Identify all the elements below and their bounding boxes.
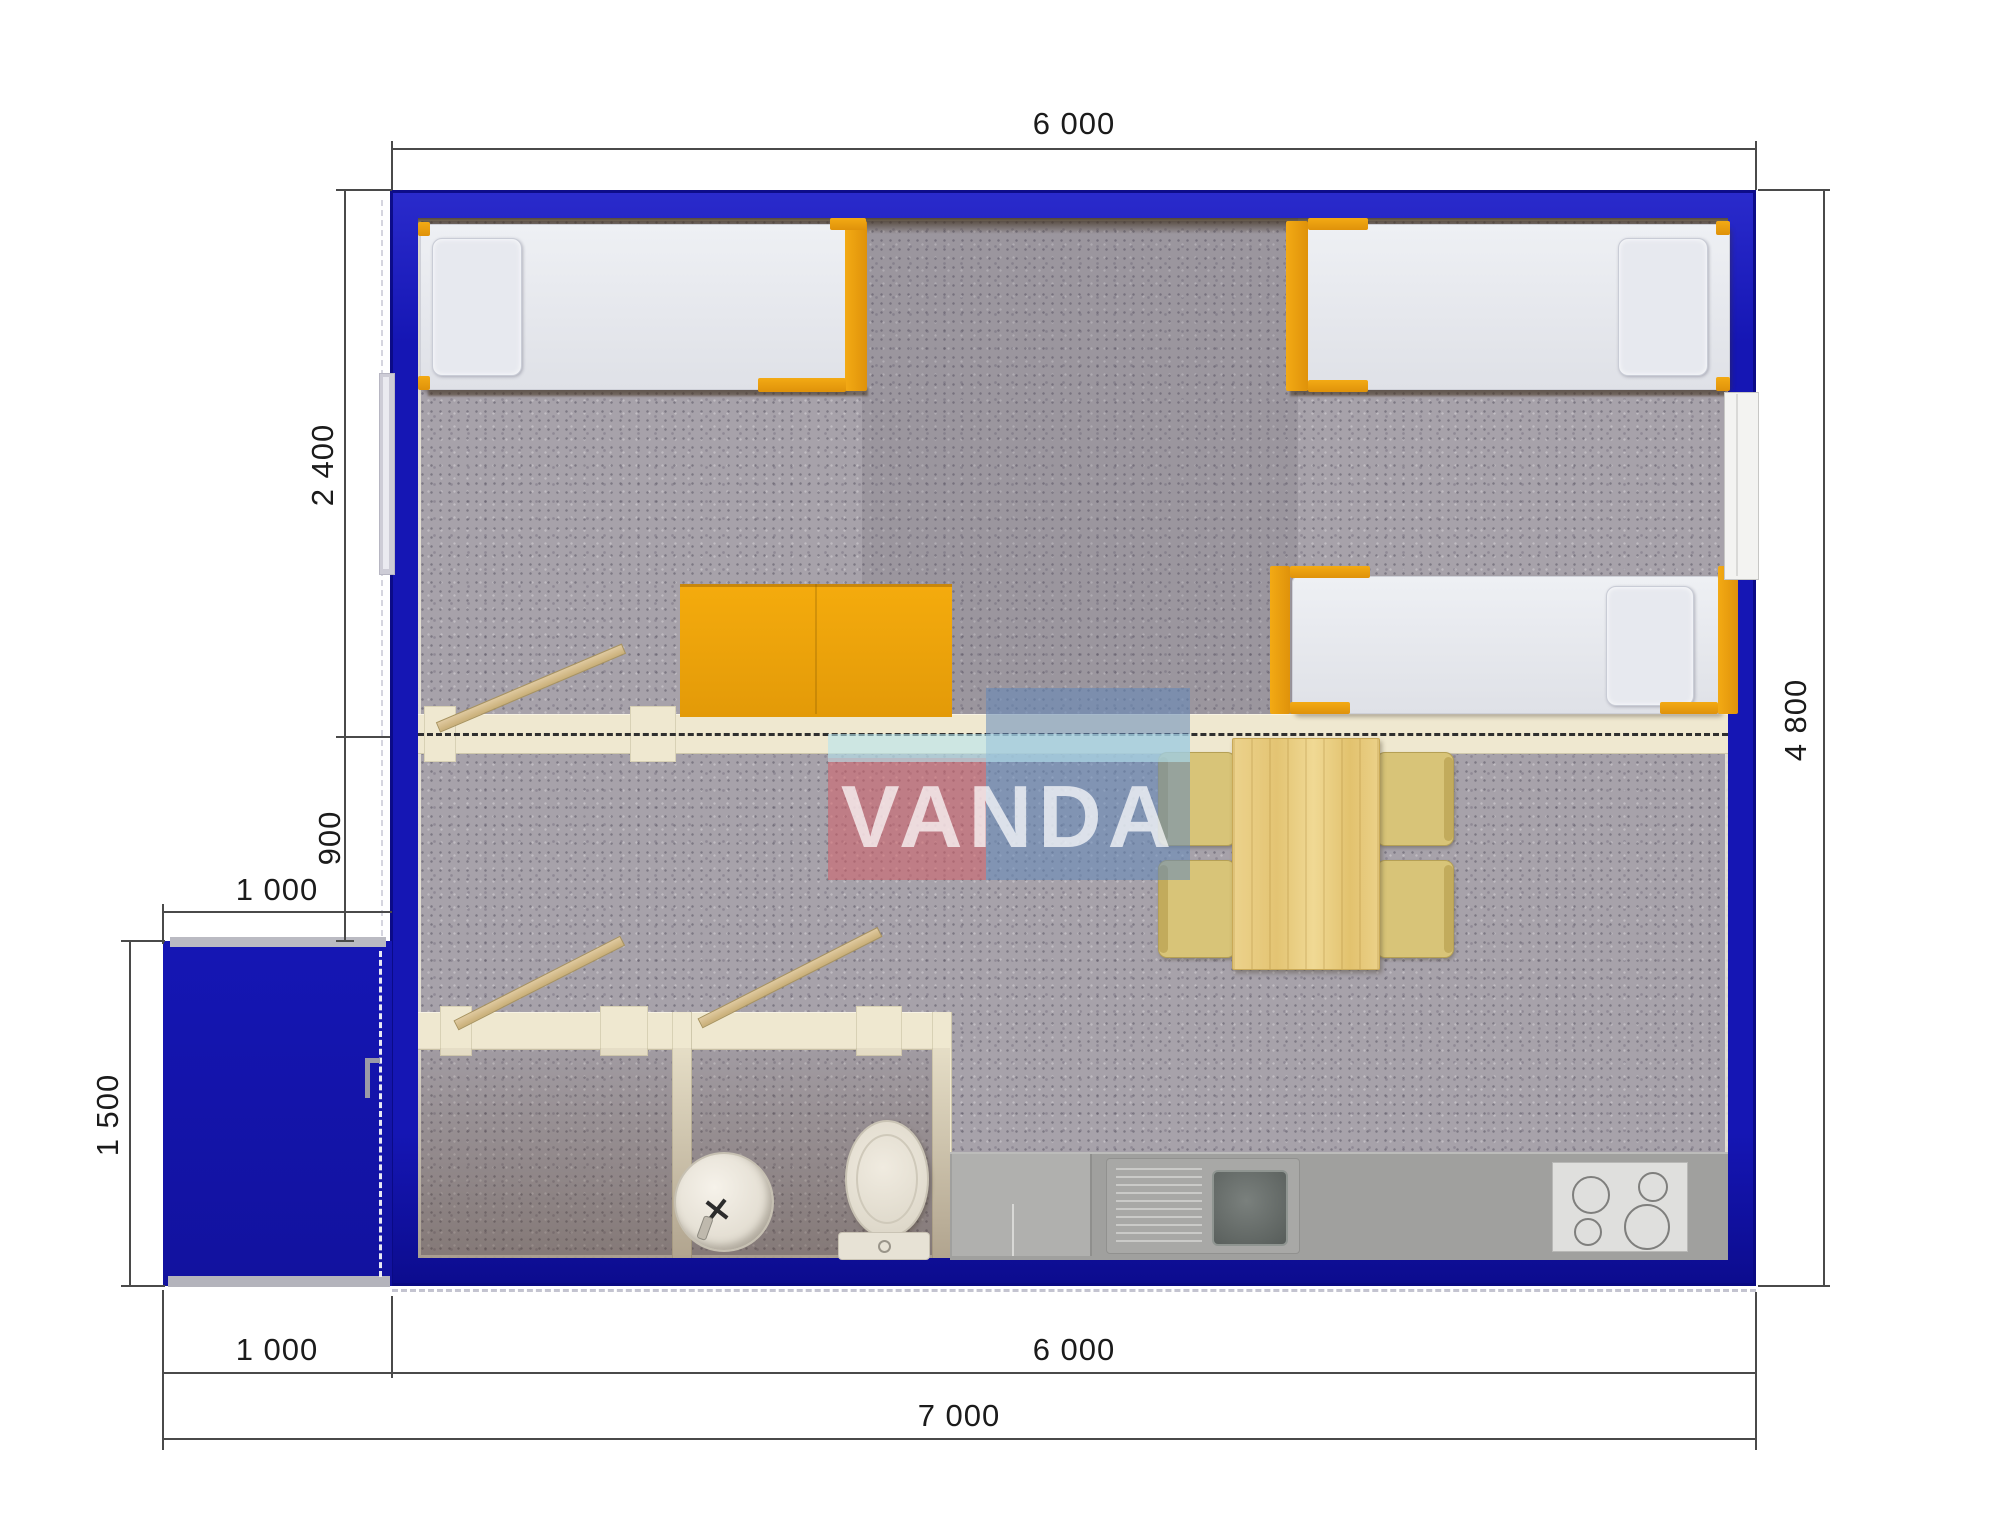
bed-frame-rail: [758, 378, 846, 392]
dim-line-bottom-2: [163, 1438, 1756, 1440]
dim-label-bottom-main: 6 000: [1000, 1332, 1148, 1368]
bed-top-left-pillow: [432, 238, 522, 376]
dim-label-bottom-porch: 1 000: [202, 1332, 352, 1368]
bed-frame-tab: [1716, 221, 1730, 235]
sink-drainboard: [1116, 1168, 1202, 1244]
stove-burner: [1638, 1172, 1668, 1202]
toilet-seat-rim: [856, 1134, 918, 1224]
bed-frame-rail: [1308, 218, 1368, 230]
dim-line-bottom-1: [163, 1372, 1756, 1374]
window-right-wall: [1724, 392, 1759, 580]
kitchen-sink-basin: [1212, 1170, 1288, 1246]
door-handle-icon: [365, 1058, 380, 1063]
stove-burner: [1574, 1218, 1602, 1246]
entrance-door-dashed-line: [379, 951, 382, 1277]
bed-frame-rail: [830, 218, 866, 230]
cabinet-split: [1012, 1204, 1014, 1256]
dim-label-porch-depth: 1 500: [90, 1035, 126, 1195]
bed-mid-right-pillow: [1606, 586, 1694, 706]
stove-burner: [1572, 1176, 1610, 1214]
dining-chair: [1376, 860, 1454, 958]
dim-line-top: [392, 148, 1756, 150]
dim-tick: [336, 940, 354, 942]
stove-top: [1552, 1162, 1688, 1252]
dim-tick: [336, 736, 390, 738]
dining-chair: [1376, 752, 1454, 846]
window-left-glass: [383, 377, 389, 569]
dim-ext: [1758, 1285, 1830, 1287]
brand-watermark: VANDA: [828, 688, 1190, 882]
kitchen-cabinet: [952, 1154, 1092, 1256]
door-handle-icon: [365, 1058, 370, 1098]
stove-burner: [1624, 1204, 1670, 1250]
bed-frame-rail: [1290, 566, 1370, 578]
dim-ext: [1755, 141, 1757, 190]
dining-table: [1232, 738, 1380, 970]
dim-label-porch-width-top: 1 000: [202, 872, 352, 908]
bed-frame-bar: [1718, 566, 1738, 714]
bottom-wall-hidden-edge: [392, 1289, 1756, 1292]
dim-ext: [391, 1296, 393, 1378]
dim-ext: [121, 1285, 165, 1287]
bed-frame-rail: [1660, 702, 1718, 714]
bed-frame-bar: [1286, 221, 1308, 391]
bed-frame-tab: [1716, 377, 1730, 391]
bed-frame-rail: [1290, 702, 1350, 714]
watermark-text: VANDA: [828, 766, 1190, 868]
watermark-banner: [828, 734, 1190, 762]
porch-step-edge-top: [170, 937, 386, 947]
toilet-flush-button: [878, 1240, 891, 1253]
floor-plan-canvas: VANDA 6 000 4 800 2 400 900 1 000 1 500 …: [0, 0, 2000, 1537]
dim-label-top-width: 6 000: [1000, 106, 1148, 142]
wardrobe-door-split: [815, 584, 817, 714]
dim-line-porch-depth: [129, 941, 131, 1286]
bed-frame-tab: [418, 222, 430, 236]
bed-top-right-pillow: [1618, 238, 1708, 376]
dim-ext: [162, 1290, 164, 1450]
dim-line-porch-top: [163, 911, 392, 913]
porch-step-edge-bottom: [168, 1276, 390, 1287]
dim-ext: [391, 141, 393, 190]
dim-ext: [162, 904, 164, 944]
dim-label-bedroom-depth: 2 400: [305, 385, 341, 545]
dim-tick: [336, 189, 392, 191]
dim-ext: [121, 940, 165, 942]
bed-frame-tab: [418, 376, 430, 390]
bed-frame-rail: [1308, 380, 1368, 392]
bed-frame-bar: [845, 221, 867, 391]
dim-ext: [1758, 189, 1830, 191]
dim-label-right-depth: 4 800: [1778, 640, 1814, 800]
bed-frame-bar: [1270, 566, 1290, 714]
dim-label-bottom-total: 7 000: [885, 1398, 1033, 1434]
window-right-glass: [1736, 394, 1738, 576]
dim-ext: [1755, 1292, 1757, 1450]
dim-line-right: [1823, 190, 1825, 1286]
entrance-porch: [163, 941, 392, 1286]
